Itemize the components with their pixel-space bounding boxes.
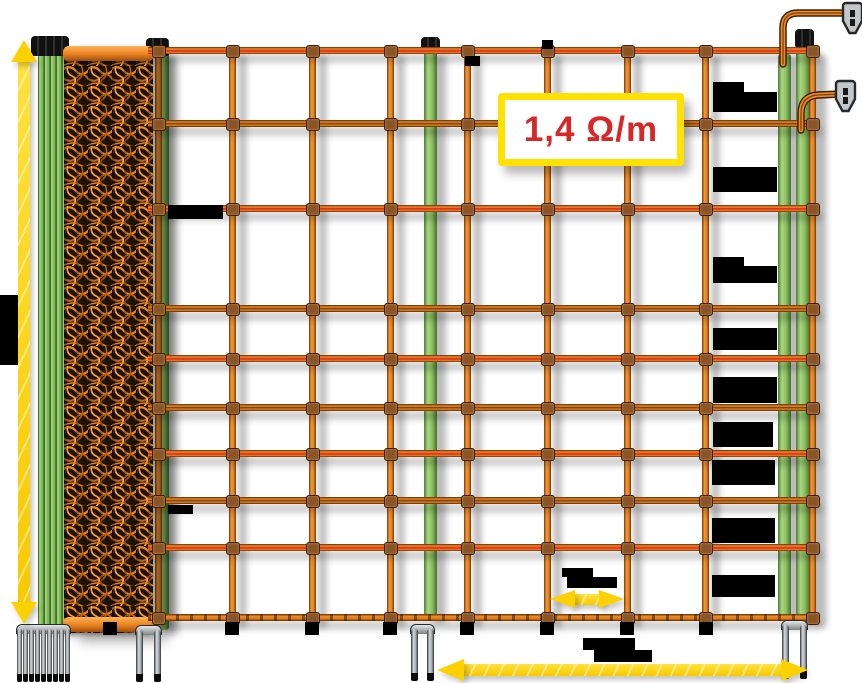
redacted-measurement [168,205,223,219]
redacted-measurement [712,460,775,485]
redacted-measurement [713,377,777,403]
redacted-measurement [0,295,18,365]
redacted-measurement [168,505,193,514]
redacted-measurement [712,575,775,597]
fence-net-diagram: 1,4 Ω/m [0,0,862,683]
redacted-measurement [594,650,652,662]
redacted-measurement [713,167,777,192]
redacted-measurement [713,422,773,447]
redacted-measurement [562,568,593,577]
redacted-measurements-layer [0,0,862,683]
redacted-measurement [713,266,777,283]
redacted-measurement [567,577,617,588]
redacted-measurement [583,638,635,650]
redacted-measurement [713,92,777,112]
redacted-measurement [713,328,777,350]
redacted-measurement [712,518,775,543]
